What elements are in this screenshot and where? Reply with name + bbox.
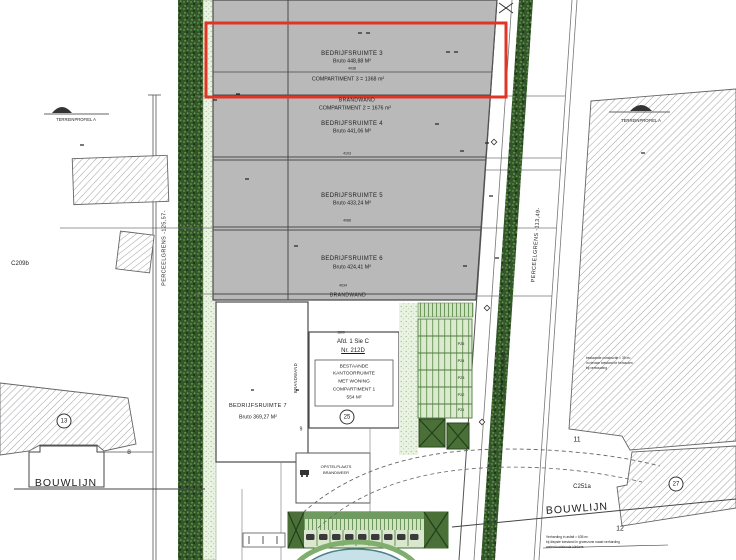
note-right-2: in nieuwe toestand te behouden bbox=[586, 361, 633, 365]
unit6-dim: 4034 bbox=[339, 284, 347, 288]
site-plan-drawing bbox=[0, 0, 736, 560]
survey-marker-icon bbox=[499, 3, 513, 13]
compartment3-label: COMPARTIMENT 3 = 1368 m² bbox=[312, 77, 384, 82]
unit4-dim: 4103 bbox=[343, 152, 351, 156]
office-line-5: 554 M² bbox=[347, 397, 362, 402]
note-bottom-3: waterdoorlatende klinkers bbox=[546, 545, 584, 549]
unit5-name: BEDRIJFSRUIMTE 5 bbox=[321, 193, 383, 199]
terrain-profile-marker-left bbox=[44, 107, 109, 114]
site-plan: BEDRIJFSRUIMTE 3 Bruto 448,88 M² 4038 CO… bbox=[0, 0, 736, 560]
plot-circle-13: 13 bbox=[57, 414, 72, 429]
compartment2-label: COMPARTIMENT 2 = 1676 m² bbox=[319, 106, 391, 111]
unit3-area: Bruto 448,88 M² bbox=[333, 59, 371, 64]
fire-truck-area bbox=[296, 453, 370, 503]
bouwlijn-label-left: BOUWLIJN bbox=[35, 478, 97, 489]
unit7-name: BEDRIJFSRUIMTE 7 bbox=[229, 404, 287, 410]
unit4-name: BEDRIJFSRUIMTE 4 bbox=[321, 121, 383, 127]
note-right-1: bestaande constructie = 35 m² bbox=[586, 356, 630, 360]
firewall-label-top: BRANDWAND bbox=[339, 99, 375, 104]
neighbor-building-left-2 bbox=[116, 231, 154, 273]
parking-grass-pavers bbox=[418, 319, 472, 418]
unit7-area: Bruto 369,27 M² bbox=[239, 415, 277, 420]
unit5-area: Bruto 433,24 M² bbox=[333, 201, 371, 206]
tree-planters bbox=[419, 419, 469, 449]
unit3-name: BEDRIJFSRUIMTE 3 bbox=[321, 51, 383, 57]
cadastral-c251a: C251a bbox=[573, 484, 591, 490]
cadastral-afd: Afd. 1 Sie C bbox=[337, 339, 369, 345]
plot-number-11: 11 bbox=[573, 437, 580, 444]
lawn-area bbox=[399, 303, 418, 455]
main-building bbox=[213, 0, 497, 300]
parcel-boundary-left-label: PERCEELGRENS -125,57- bbox=[162, 210, 168, 286]
plot-number-8: 8 bbox=[127, 450, 131, 457]
parking-label-p25: P25 bbox=[458, 343, 465, 347]
office-line-1: BESTAANDE bbox=[340, 366, 369, 371]
plot-number-9: 9 bbox=[300, 428, 303, 433]
unit6-area: Bruto 424,41 M² bbox=[333, 265, 371, 270]
note-bottom-1: Verharding in asfalt = 635 m² bbox=[546, 535, 588, 539]
parking-label-p24: P24 bbox=[458, 360, 465, 364]
office-line-3: MET WONING bbox=[338, 381, 370, 386]
greenbuffer-label-upper: GROENBUFFER bbox=[195, 137, 199, 173]
parking-label-p22: P22 bbox=[458, 394, 465, 398]
cadastral-nr: Nr. 212D bbox=[341, 348, 365, 354]
terrain-profile-right-label: TERREINPROFIEL A bbox=[621, 119, 661, 123]
parking-label-p21: P21 bbox=[458, 409, 465, 413]
hedge-strip bbox=[418, 303, 473, 317]
plot-circle-25: 25 bbox=[340, 410, 355, 425]
unit6-name: BEDRIJFSRUIMTE 6 bbox=[321, 256, 383, 262]
unit3-dim: 4038 bbox=[348, 67, 356, 71]
firewall-label-vertical: BRANDWAND bbox=[294, 363, 298, 393]
fire-area-line1: OPSTELPLAATS bbox=[321, 465, 352, 469]
terrain-profile-left-label: TERREINPROFIEL A bbox=[56, 118, 96, 122]
firewall-label-bottom: BRANDWAND bbox=[330, 294, 366, 299]
office-line-4: COMPARTIMENT 1 bbox=[333, 389, 375, 394]
parking-label-p23: P23 bbox=[458, 377, 465, 381]
office-dim: 1800 bbox=[337, 331, 345, 334]
greenbuffer-label-lower: GROENBUFFER bbox=[195, 402, 199, 438]
parked-cars bbox=[306, 534, 419, 540]
green-buffer-strip bbox=[178, 0, 203, 560]
neighbor-building-right-upper bbox=[569, 89, 736, 450]
plot-circle-27: 27 bbox=[669, 477, 684, 492]
office-line-2: KANTOORRUIMTE bbox=[333, 373, 375, 378]
plot-number-12: 12 bbox=[616, 526, 624, 533]
fire-area-line2: BRANDWEER bbox=[323, 471, 349, 475]
note-right-3: bij verbouwing bbox=[586, 366, 607, 370]
unit5-dim: 4088 bbox=[343, 219, 351, 223]
cadastral-c209b: C209b bbox=[11, 261, 29, 267]
neighbor-building-left-1 bbox=[72, 155, 169, 204]
unit4-area: Bruto 441,06 M² bbox=[333, 129, 371, 134]
